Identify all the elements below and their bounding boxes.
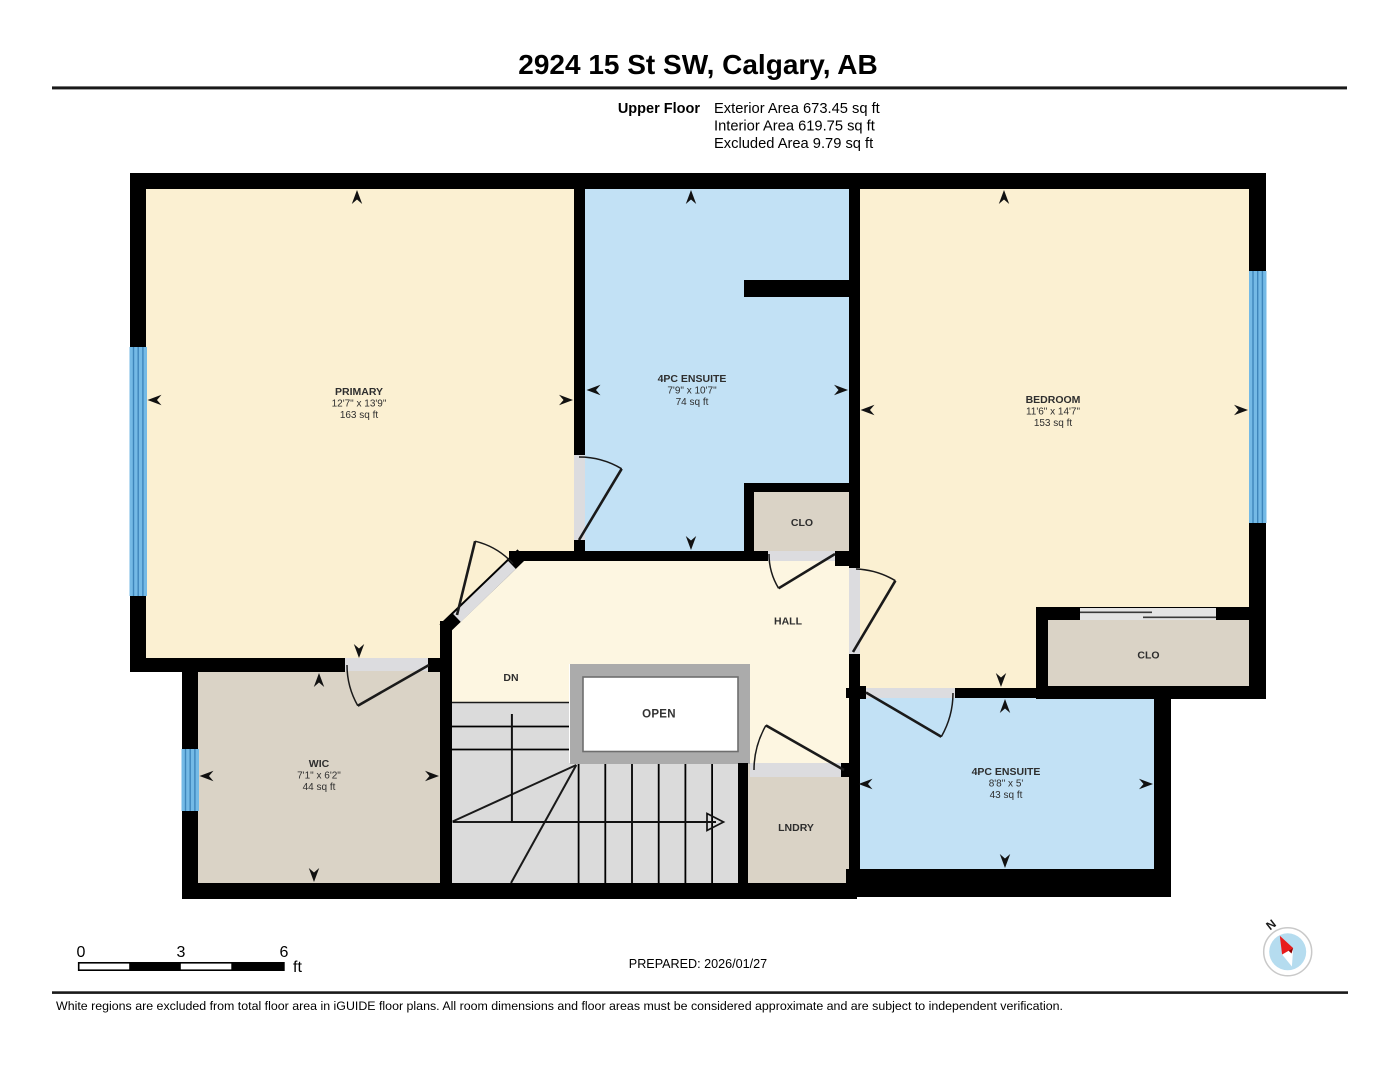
svg-text:7'9" x 10'7": 7'9" x 10'7": [667, 386, 717, 397]
svg-text:Interior Area 619.75 sq ft: Interior Area 619.75 sq ft: [714, 118, 875, 134]
svg-text:44 sq ft: 44 sq ft: [303, 782, 336, 793]
svg-text:11'6" x 14'7": 11'6" x 14'7": [1026, 407, 1081, 418]
svg-text:White regions are excluded fro: White regions are excluded from total fl…: [56, 999, 1063, 1013]
svg-text:153 sq ft: 153 sq ft: [1034, 418, 1073, 429]
svg-text:2924 15 St SW, Calgary, AB: 2924 15 St SW, Calgary, AB: [518, 49, 878, 80]
svg-text:4PC ENSUITE: 4PC ENSUITE: [658, 373, 727, 385]
svg-text:DN: DN: [503, 672, 518, 684]
svg-text:WIC: WIC: [309, 758, 330, 770]
svg-text:7'1" x 6'2": 7'1" x 6'2": [297, 771, 341, 782]
svg-text:6: 6: [280, 944, 289, 961]
svg-text:12'7" x 13'9": 12'7" x 13'9": [332, 399, 387, 410]
svg-text:4PC ENSUITE: 4PC ENSUITE: [972, 766, 1041, 778]
svg-text:ft: ft: [293, 959, 302, 976]
svg-text:163 sq ft: 163 sq ft: [340, 410, 379, 421]
svg-text:OPEN: OPEN: [642, 709, 676, 721]
svg-text:CLO: CLO: [1137, 650, 1159, 662]
svg-text:Exterior Area 673.45 sq ft: Exterior Area 673.45 sq ft: [714, 101, 880, 117]
svg-text:PRIMARY: PRIMARY: [335, 386, 383, 398]
svg-text:BEDROOM: BEDROOM: [1026, 394, 1081, 406]
svg-text:HALL: HALL: [774, 616, 803, 628]
svg-text:43 sq ft: 43 sq ft: [990, 790, 1023, 801]
svg-text:8'8" x 5': 8'8" x 5': [989, 779, 1024, 790]
svg-text:Excluded Area 9.79 sq ft: Excluded Area 9.79 sq ft: [714, 136, 873, 152]
svg-text:0: 0: [77, 944, 86, 961]
svg-text:PREPARED: 2026/01/27: PREPARED: 2026/01/27: [629, 957, 767, 971]
svg-text:LNDRY: LNDRY: [778, 822, 814, 834]
svg-text:CLO: CLO: [791, 517, 813, 529]
svg-text:Upper Floor: Upper Floor: [618, 101, 701, 117]
svg-text:74 sq ft: 74 sq ft: [676, 397, 709, 408]
svg-text:3: 3: [177, 944, 186, 961]
